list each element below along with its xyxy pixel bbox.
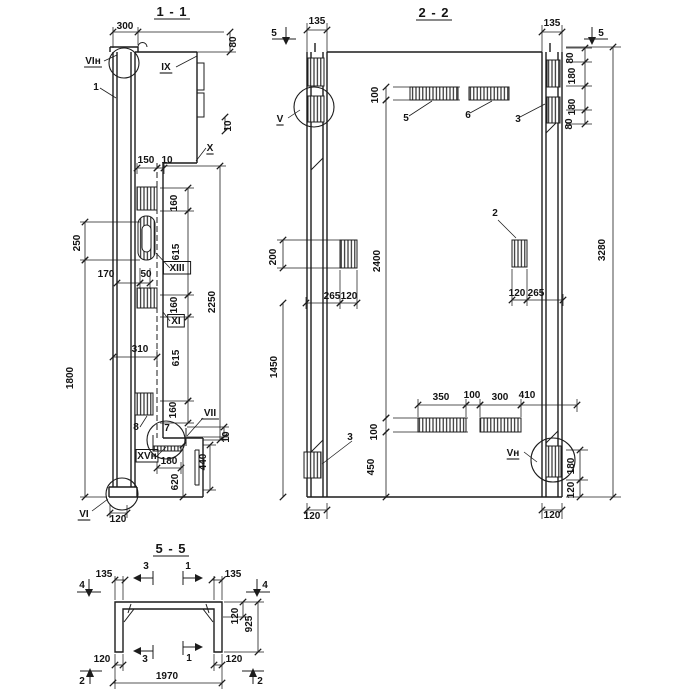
dim-label: 180 bbox=[567, 98, 578, 115]
dim-label: 80 bbox=[564, 118, 575, 130]
ref-V: V bbox=[277, 114, 284, 125]
embedded-plate-6 bbox=[469, 87, 509, 100]
section-5-5-annotations: 5 - 5413531135412092512031120197022 bbox=[79, 541, 268, 687]
cut-mark-2: 2 bbox=[79, 676, 85, 687]
dim-label: 265 bbox=[324, 291, 341, 302]
corner-haunch-lines bbox=[124, 604, 213, 622]
cut-arrow-down-icon bbox=[253, 589, 261, 597]
cut-mark-2: 2 bbox=[257, 676, 263, 687]
dim-label: 925 bbox=[244, 615, 255, 632]
mark-3: 3 bbox=[515, 114, 521, 125]
dim-label: 410 bbox=[519, 390, 536, 401]
dim-label: 3280 bbox=[597, 238, 608, 261]
dim-label: 1800 bbox=[65, 366, 76, 389]
dim-label: 80 bbox=[228, 36, 239, 48]
dim-label: 100 bbox=[370, 86, 381, 103]
dim-label: 620 bbox=[170, 473, 181, 490]
mark-5: 5 bbox=[403, 113, 409, 124]
dim-label: 180 bbox=[567, 67, 578, 84]
dim-label: 440 bbox=[198, 453, 209, 470]
embedded-plate-hatch bbox=[304, 452, 321, 478]
cut-arrow-down-icon bbox=[282, 37, 290, 45]
embedded-plate-hatch bbox=[308, 58, 324, 86]
dim-label: 350 bbox=[433, 392, 450, 403]
dim-label: 120 bbox=[566, 481, 577, 498]
embedded-plate-hatch bbox=[137, 288, 157, 308]
edge-key-notches bbox=[197, 63, 204, 117]
section-1-1-title: 1 - 1 bbox=[156, 4, 187, 19]
annotations-layer: 1 - 130080VIн1IX10X15010160615XIII160XI6… bbox=[65, 4, 616, 687]
dim-label: 135 bbox=[225, 569, 242, 580]
dim-label: 100 bbox=[369, 423, 380, 440]
cut-arrow-left-icon bbox=[133, 647, 141, 655]
mark-3: 3 bbox=[347, 432, 353, 443]
embedded-plate-hatch bbox=[137, 187, 157, 210]
dim-label: 120 bbox=[509, 288, 526, 299]
dim-label: 135 bbox=[309, 16, 326, 27]
mark-7: 7 bbox=[164, 423, 170, 434]
dim-label: 80 bbox=[565, 52, 576, 64]
dim-label: 160 bbox=[169, 194, 180, 211]
cut-mark-3: 3 bbox=[143, 561, 149, 572]
dim-label: 450 bbox=[366, 458, 377, 475]
dim-label: 10 bbox=[161, 155, 173, 166]
channel-outline bbox=[115, 602, 222, 652]
cut-arrow-right-icon bbox=[195, 643, 203, 651]
dim-label: 250 bbox=[72, 234, 83, 251]
dim-label: 1970 bbox=[156, 671, 179, 682]
dim-label: 615 bbox=[171, 243, 182, 260]
section-5-5-title: 5 - 5 bbox=[155, 541, 186, 556]
cut-mark-1: 1 bbox=[185, 561, 191, 572]
dim-label: 200 bbox=[268, 248, 279, 265]
dim-label: 2400 bbox=[372, 249, 383, 272]
dim-label: 300 bbox=[492, 392, 509, 403]
dim-label: 1450 bbox=[269, 355, 280, 378]
engineering-drawing-canvas: 1 - 130080VIн1IX10X15010160615XIII160XI6… bbox=[0, 0, 700, 700]
extension-lines bbox=[115, 576, 264, 689]
embedded-plate-hatch bbox=[308, 96, 324, 122]
embedded-plate-hatch bbox=[340, 240, 357, 268]
dim-label: 120 bbox=[94, 654, 111, 665]
dim-label: 180 bbox=[566, 457, 577, 474]
embedded-plate-hatch bbox=[418, 418, 466, 432]
dim-label: 100 bbox=[464, 390, 481, 401]
mark-6: 6 bbox=[465, 110, 471, 121]
cut-arrow-left-icon bbox=[133, 574, 141, 582]
drawing-sheet: 1 - 130080VIн1IX10X15010160615XIII160XI6… bbox=[0, 0, 700, 700]
dim-label: 160 bbox=[168, 401, 179, 418]
detail-circle-VI bbox=[106, 478, 138, 510]
dim-label: 180 bbox=[161, 456, 178, 467]
dim-label: 265 bbox=[528, 288, 545, 299]
ref-XVn: XVн bbox=[137, 451, 156, 462]
cut-mark-5: 5 bbox=[271, 28, 277, 39]
dim-label: 10 bbox=[223, 120, 234, 132]
dim-label: 120 bbox=[304, 511, 321, 522]
cut-arrow-right-icon bbox=[195, 574, 203, 582]
cut-mark-5: 5 bbox=[598, 28, 604, 39]
cut-arrow-down-icon bbox=[588, 37, 596, 45]
ref-XIII: XIII bbox=[169, 263, 184, 274]
dim-label: 120 bbox=[110, 514, 127, 525]
mark-8: 8 bbox=[133, 422, 139, 433]
section-2-2-title: 2 - 2 bbox=[418, 5, 449, 20]
cut-arrow-down-icon bbox=[85, 589, 93, 597]
ref-Vn: Vн bbox=[507, 448, 520, 459]
dim-label: 170 bbox=[98, 269, 115, 280]
dim-label: 10 bbox=[221, 431, 232, 443]
embedded-plate-5 bbox=[410, 87, 458, 100]
panel-outline bbox=[109, 47, 203, 497]
dim-label: 120 bbox=[341, 291, 358, 302]
dim-label: 50 bbox=[140, 269, 152, 280]
ref-VII: VII bbox=[204, 408, 216, 419]
dim-label: 120 bbox=[230, 607, 241, 624]
dim-label: 135 bbox=[96, 569, 113, 580]
cut-arrow-up-icon bbox=[249, 668, 257, 677]
ref-IX: IX bbox=[161, 62, 171, 73]
dim-label: 2250 bbox=[207, 290, 218, 313]
section-2-2-geometry bbox=[272, 23, 621, 519]
cut-mark-4: 4 bbox=[79, 580, 85, 591]
ref-X: X bbox=[207, 143, 214, 154]
dim-label: 310 bbox=[132, 344, 149, 355]
embedded-plate-hatch bbox=[547, 97, 560, 123]
lifting-slot-hole bbox=[142, 225, 151, 252]
mark-2: 2 bbox=[492, 208, 498, 219]
cut-marker-lines bbox=[77, 571, 270, 684]
lifting-loop-icon bbox=[138, 43, 147, 48]
cut-mark-3: 3 bbox=[142, 654, 148, 665]
embedded-plate-hatch bbox=[135, 393, 153, 415]
dim-label: 160 bbox=[169, 296, 180, 313]
mark-1: 1 bbox=[93, 82, 99, 93]
section-1-1-annotations: 1 - 130080VIн1IX10X15010160615XIII160XI6… bbox=[65, 4, 239, 525]
ref-VI: VI bbox=[79, 509, 89, 520]
ref-XI: XI bbox=[171, 316, 181, 327]
detail-7-hatch bbox=[153, 446, 181, 451]
dim-label: 120 bbox=[226, 654, 243, 665]
dim-label: 120 bbox=[544, 510, 561, 521]
dim-label: 135 bbox=[544, 18, 561, 29]
dim-label: 615 bbox=[171, 349, 182, 366]
dim-label: 300 bbox=[117, 21, 134, 32]
cut-mark-1: 1 bbox=[186, 653, 192, 664]
cut-arrow-up-icon bbox=[86, 668, 94, 677]
ref-VIn: VIн bbox=[85, 56, 101, 67]
embedded-plate-hatch bbox=[547, 60, 560, 87]
embedded-plate-hatch bbox=[480, 418, 521, 432]
embedded-plate-hatch bbox=[546, 446, 561, 477]
embedded-plate-2 bbox=[512, 240, 527, 267]
dim-label: 150 bbox=[138, 155, 155, 166]
cut-mark-4: 4 bbox=[262, 580, 268, 591]
